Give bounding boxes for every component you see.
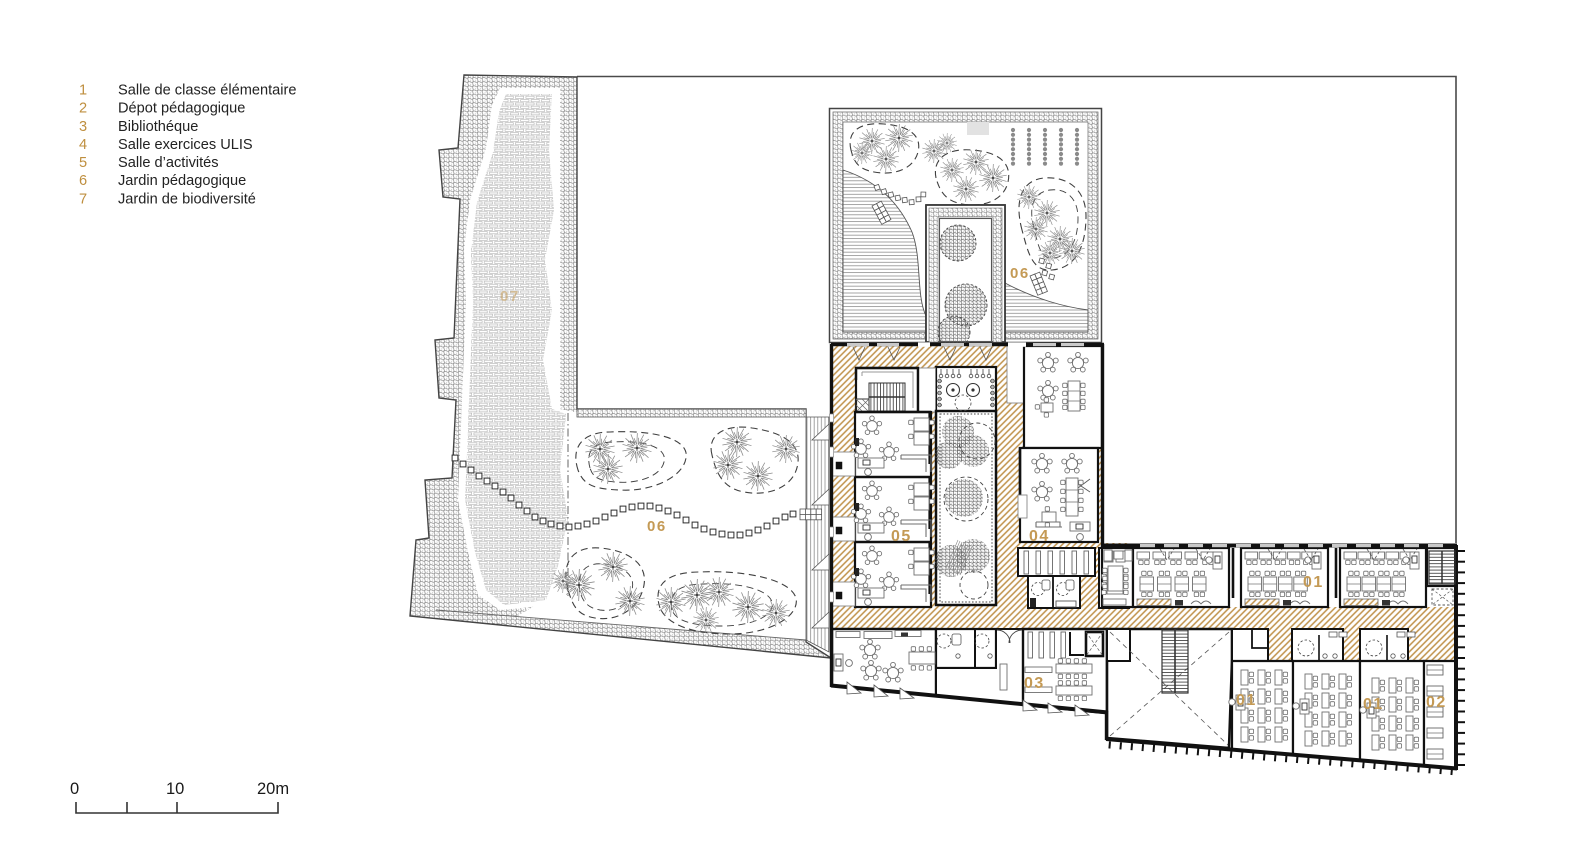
svg-text:Jardin pédagogique: Jardin pédagogique <box>118 173 246 189</box>
svg-text:4: 4 <box>79 137 87 153</box>
svg-text:06: 06 <box>1010 265 1030 282</box>
svg-text:2: 2 <box>79 101 87 117</box>
svg-text:0: 0 <box>70 780 79 798</box>
svg-text:1: 1 <box>79 83 87 99</box>
svg-text:Salle d’activités: Salle d’activités <box>118 155 219 171</box>
svg-text:Bibliothéque: Bibliothéque <box>118 119 198 135</box>
svg-text:03: 03 <box>1024 675 1045 692</box>
svg-text:5: 5 <box>79 155 87 171</box>
svg-text:7: 7 <box>79 191 87 207</box>
svg-text:3: 3 <box>79 119 87 135</box>
svg-text:6: 6 <box>79 173 87 189</box>
svg-text:01: 01 <box>1363 696 1384 713</box>
svg-text:Salle de classe élémentaire: Salle de classe élémentaire <box>118 83 296 99</box>
svg-text:10: 10 <box>166 780 184 798</box>
svg-text:07: 07 <box>500 288 520 305</box>
svg-text:05: 05 <box>891 528 912 545</box>
svg-text:02: 02 <box>1426 694 1447 711</box>
svg-text:01: 01 <box>1303 574 1324 591</box>
svg-text:04: 04 <box>1029 528 1050 545</box>
svg-text:Salle exercices ULIS: Salle exercices ULIS <box>118 137 253 153</box>
svg-text:20m: 20m <box>257 780 289 798</box>
svg-text:01: 01 <box>1236 692 1257 709</box>
svg-text:Jardin de biodiversité: Jardin de biodiversité <box>118 191 256 207</box>
svg-text:Dépot pédagogique: Dépot pédagogique <box>118 101 245 117</box>
svg-text:06: 06 <box>647 518 667 535</box>
